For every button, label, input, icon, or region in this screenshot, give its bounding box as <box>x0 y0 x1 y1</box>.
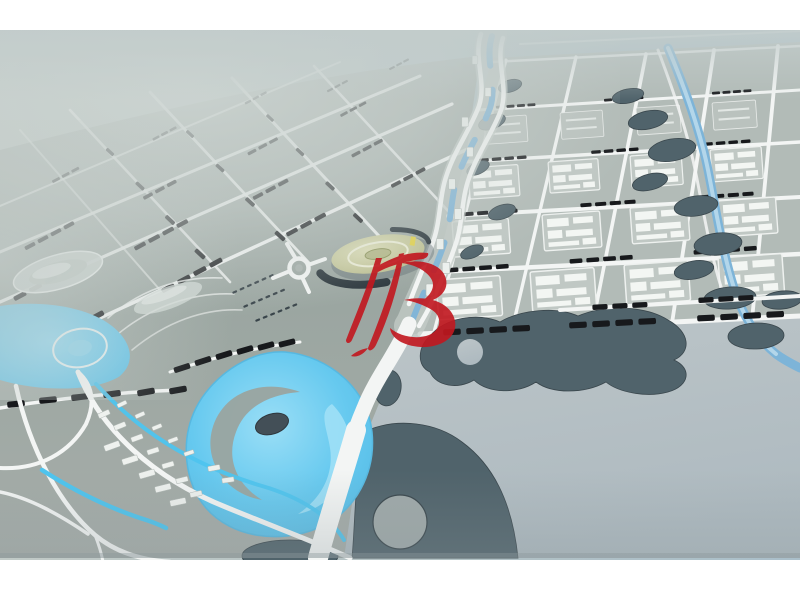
model-photo <box>0 0 800 600</box>
photo-frame <box>0 0 800 600</box>
frame-bottom <box>0 560 800 600</box>
frame-top <box>0 0 800 30</box>
